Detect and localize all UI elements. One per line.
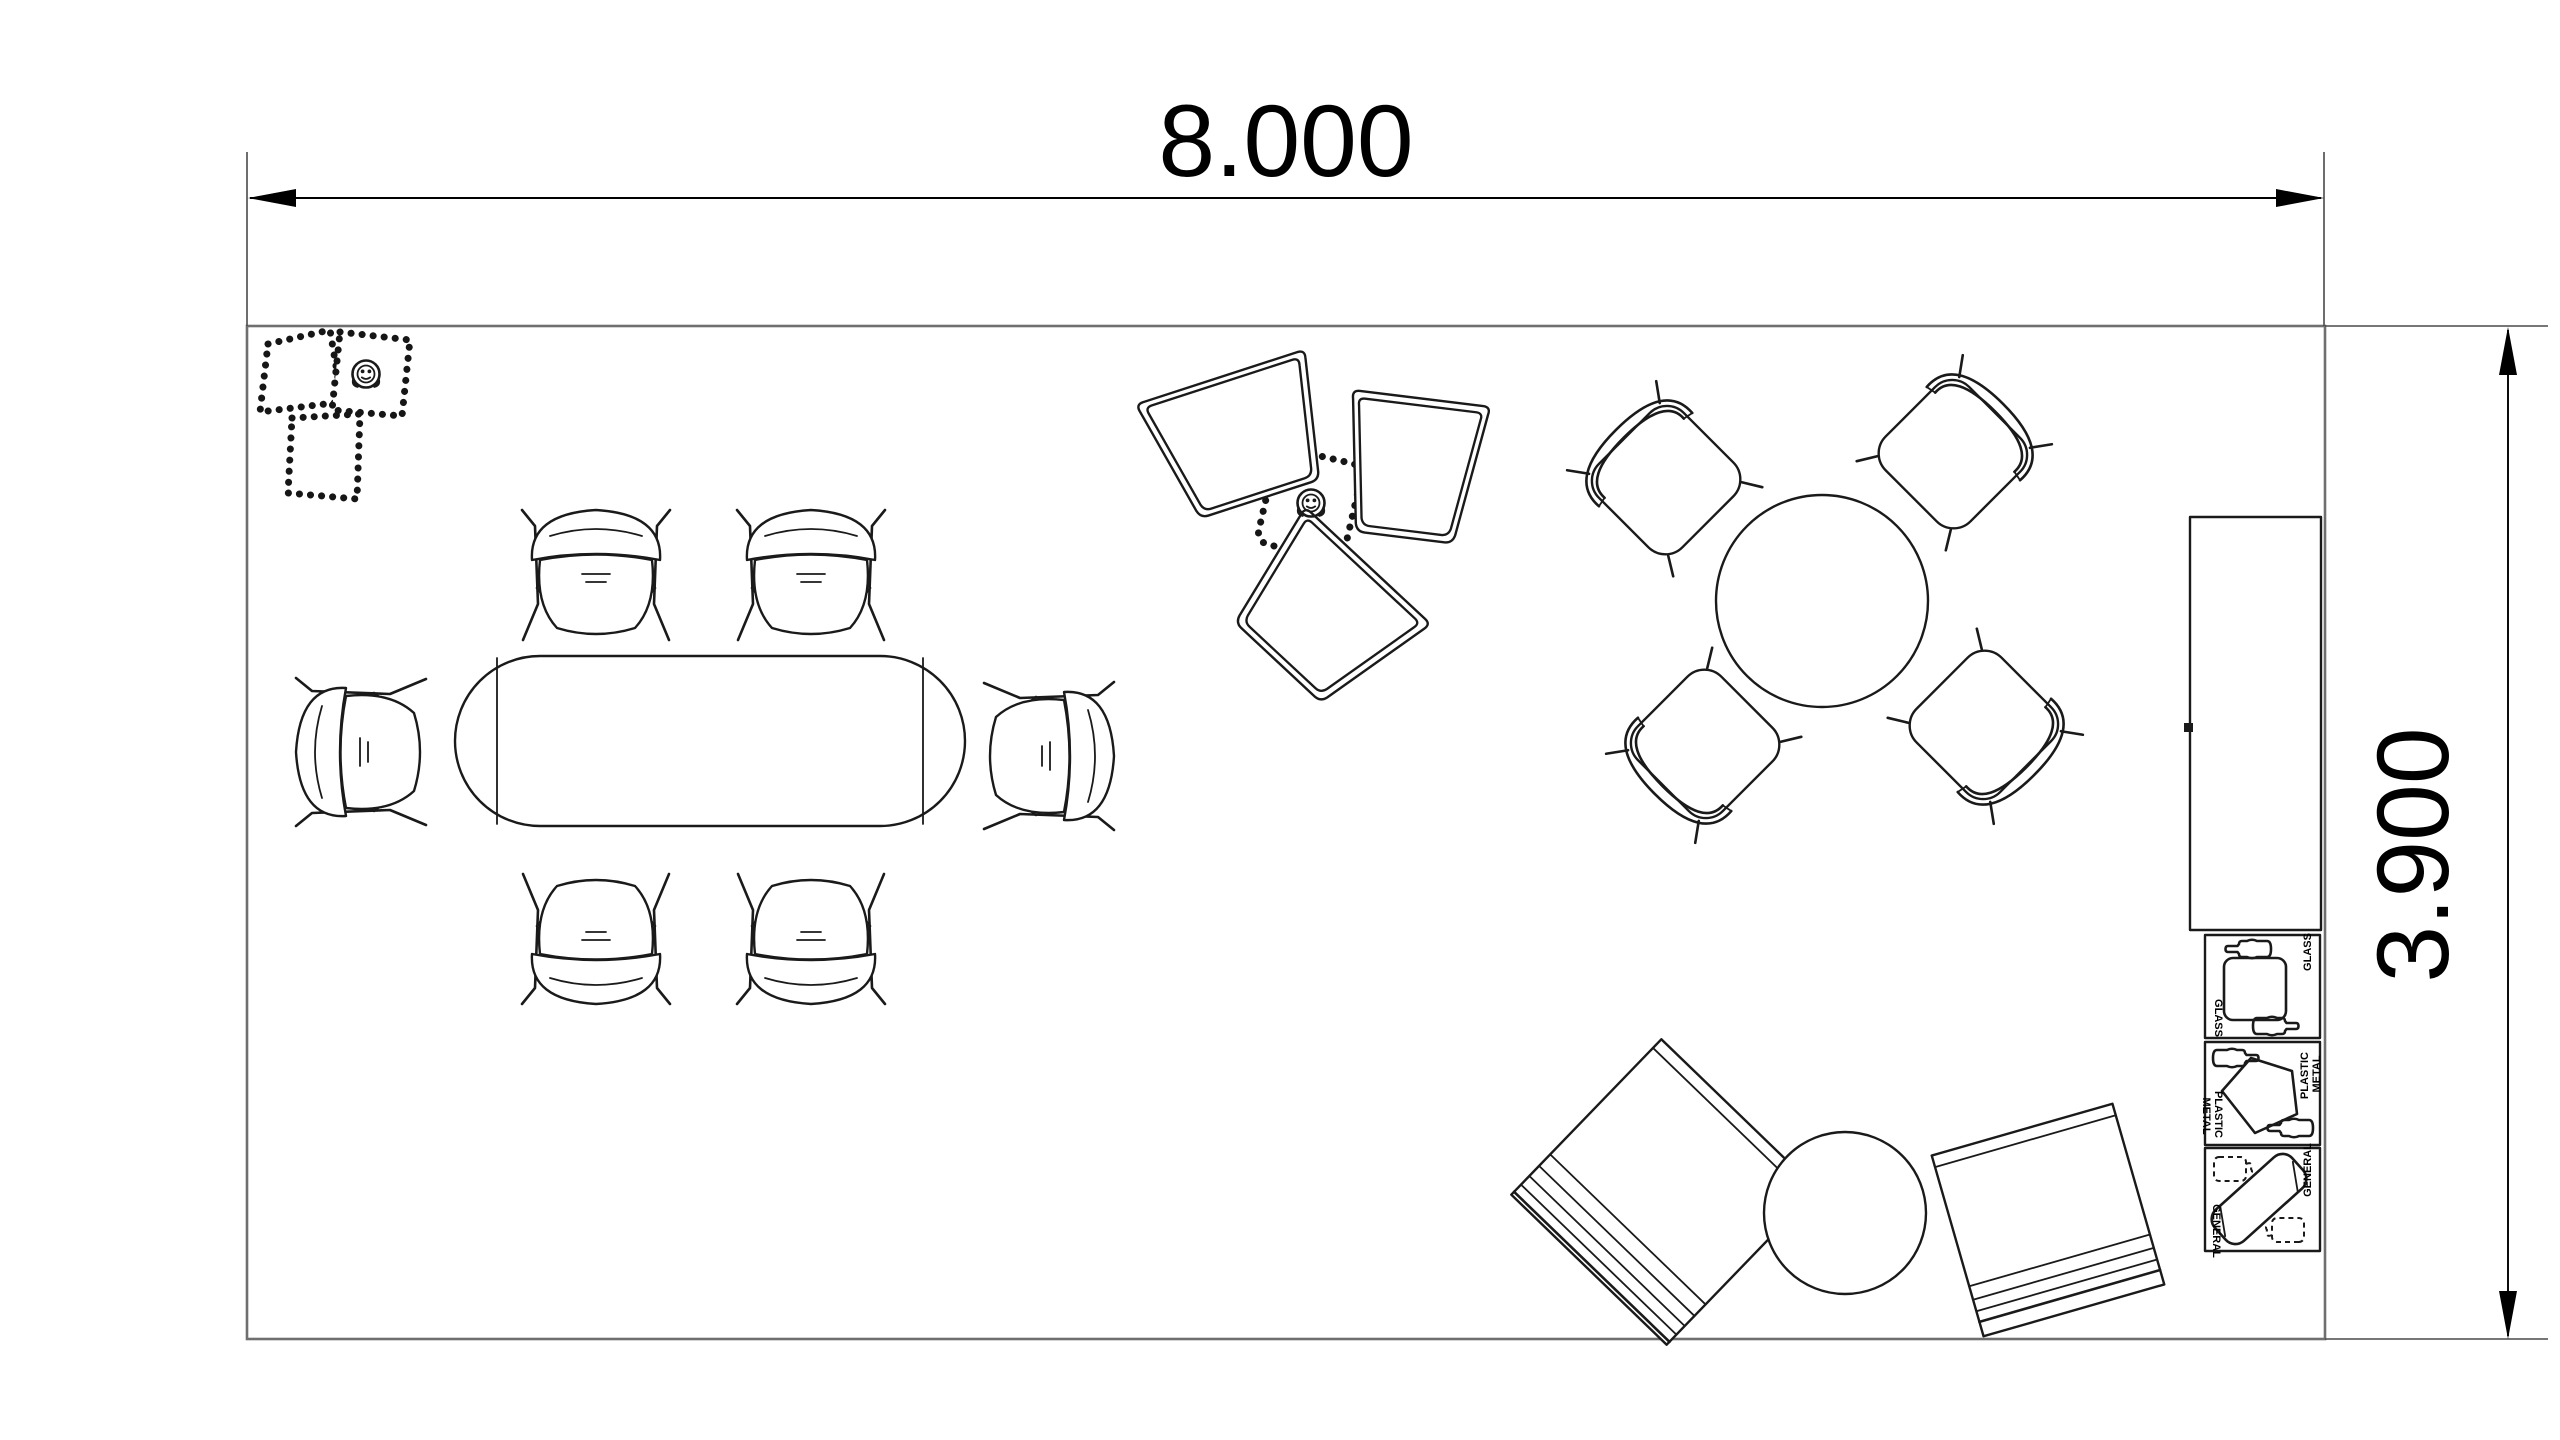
cabinet-body[interactable] xyxy=(2190,517,2321,930)
collab-table-right[interactable] xyxy=(1337,390,1490,546)
pouf-left[interactable] xyxy=(260,330,342,412)
conference-table-set[interactable] xyxy=(296,510,1114,1004)
dim-width-label: 8.000 xyxy=(1158,84,1413,198)
collab-cluster[interactable] xyxy=(1137,350,1489,720)
bin-label-plastic-left: PLASTIC METAL xyxy=(2200,1091,2224,1141)
meeting-chair-se[interactable] xyxy=(1886,627,2086,827)
conference-chair-left[interactable] xyxy=(296,678,426,826)
pouf-right[interactable] xyxy=(332,332,410,416)
bin-label-general-right: GENERAL xyxy=(2302,1143,2314,1197)
cabinet-handle xyxy=(2184,723,2193,732)
dim-arrow-left xyxy=(248,189,296,207)
recycling-bin-glass[interactable]: GLASS GLASS xyxy=(2205,933,2320,1038)
bin-label-general-left: GENERAL xyxy=(2210,1204,2222,1258)
storage-cabinet[interactable] xyxy=(2184,517,2321,930)
recycling-bin-general[interactable]: GENERAL GENERAL xyxy=(2205,1143,2320,1258)
lounge-area[interactable] xyxy=(1511,1039,2164,1344)
conference-chair-top-1[interactable] xyxy=(522,510,670,640)
recycling-station[interactable]: GLASS GLASS PLASTIC METAL PLASTIC METAL xyxy=(2200,933,2323,1258)
floor-plan-canvas: 8.000 3.900 xyxy=(0,0,2560,1440)
recycling-bin-plastic-metal[interactable]: PLASTIC METAL PLASTIC METAL xyxy=(2200,1042,2323,1145)
lounge-mat-right[interactable] xyxy=(1932,1104,2165,1337)
round-table-set[interactable] xyxy=(1565,353,2085,845)
conference-chair-bottom-1[interactable] xyxy=(522,874,670,1004)
collab-table-bottom[interactable] xyxy=(1216,508,1429,720)
pouf-cluster-corner[interactable] xyxy=(260,330,410,499)
dim-arrow-down xyxy=(2499,1291,2517,1339)
dim-arrow-up xyxy=(2499,327,2517,375)
conference-chair-top-2[interactable] xyxy=(737,510,885,640)
conference-chair-bottom-2[interactable] xyxy=(737,874,885,1004)
dim-arrow-right xyxy=(2276,189,2324,207)
conference-table[interactable] xyxy=(455,656,965,826)
conference-chair-right[interactable] xyxy=(984,682,1114,830)
bin-label-glass-left: GLASS xyxy=(2212,999,2224,1037)
bin-label-plastic-right: PLASTIC METAL xyxy=(2299,1049,2323,1099)
dimension-horizontal: 8.000 xyxy=(247,84,2324,326)
dimension-vertical: 3.900 xyxy=(2325,326,2548,1339)
round-meeting-table[interactable] xyxy=(1716,495,1928,707)
dim-height-label: 3.900 xyxy=(2356,727,2470,982)
pouf-bottom[interactable] xyxy=(288,414,360,499)
bin-label-glass-right: GLASS xyxy=(2302,933,2314,971)
round-coffee-table[interactable] xyxy=(1764,1132,1926,1294)
floor-plan-page: 8.000 3.900 xyxy=(0,0,2560,1440)
